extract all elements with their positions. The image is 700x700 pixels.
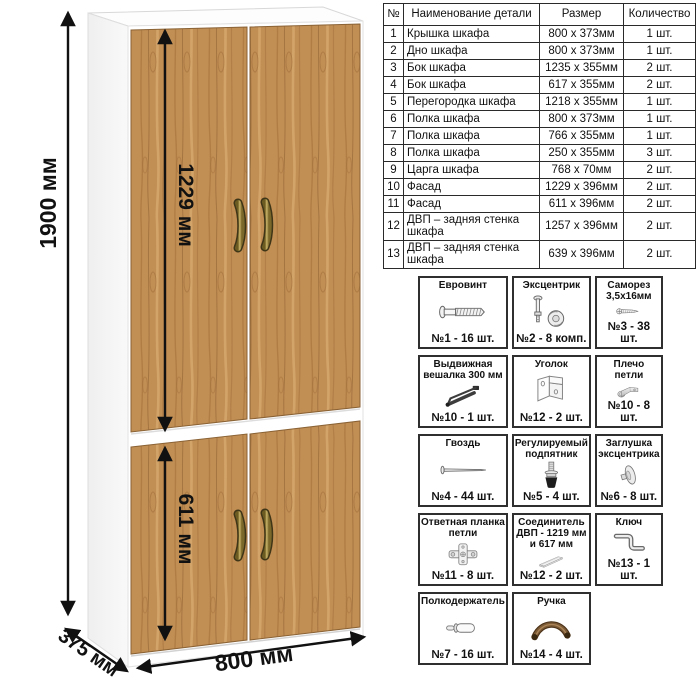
hardware-cell: Регулируемый подпятник №5 - 4 шт. bbox=[512, 434, 591, 507]
part-quantity: 2 шт. bbox=[624, 240, 696, 268]
part-number: 7 bbox=[384, 128, 404, 145]
part-number: 1 bbox=[384, 26, 404, 43]
hardware-cell: Саморез 3,5х16мм №3 - 38 шт. bbox=[595, 276, 663, 349]
parts-table-row: 10 Фасад 1229 x 396мм 2 шт. bbox=[384, 179, 696, 196]
lower-right-door-handle bbox=[265, 513, 269, 556]
nail-icon bbox=[421, 449, 505, 491]
part-size: 800 x 373мм bbox=[540, 26, 624, 43]
parts-table-row: 13 ДВП – задняя стенка шкафа 639 x 396мм… bbox=[384, 240, 696, 268]
part-name: Фасад bbox=[404, 179, 540, 196]
parts-table-row: 12 ДВП – задняя стенка шкафа 1257 x 396м… bbox=[384, 213, 696, 241]
upper-left-door-handle bbox=[238, 203, 242, 248]
handle-icon bbox=[515, 607, 588, 649]
part-number: 2 bbox=[384, 43, 404, 60]
hardware-item-count: №3 - 38 шт. bbox=[598, 321, 660, 346]
hardware-cell: Ключ №13 - 1 шт. bbox=[595, 513, 663, 586]
hex-key-icon bbox=[598, 528, 660, 558]
hardware-item-title: Саморез 3,5х16мм bbox=[598, 280, 660, 302]
part-quantity: 2 шт. bbox=[624, 77, 696, 94]
part-size: 617 x 355мм bbox=[540, 77, 624, 94]
part-name: Бок шкафа bbox=[404, 77, 540, 94]
part-number: 8 bbox=[384, 145, 404, 162]
hinge-plate-icon bbox=[421, 539, 505, 570]
hardware-item-count: №12 - 2 шт. bbox=[515, 412, 588, 425]
hardware-item-count: №13 - 1 шт. bbox=[598, 558, 660, 583]
part-size: 766 x 355мм bbox=[540, 128, 624, 145]
hardware-item-count: №7 - 16 шт. bbox=[421, 649, 505, 662]
part-quantity: 2 шт. bbox=[624, 179, 696, 196]
part-number: 4 bbox=[384, 77, 404, 94]
hardware-item-title: Уголок bbox=[515, 359, 588, 370]
part-size: 1218 x 355мм bbox=[540, 94, 624, 111]
hardware-cell: Ручка №14 - 4 шт. bbox=[512, 592, 591, 665]
screw-icon bbox=[598, 302, 660, 321]
part-quantity: 2 шт. bbox=[624, 196, 696, 213]
part-name: Фасад bbox=[404, 196, 540, 213]
hardware-item-title: Выдвижная вешалка 300 мм bbox=[421, 359, 505, 381]
part-size: 1235 x 355мм bbox=[540, 60, 624, 77]
lower-left-door-handle bbox=[238, 514, 242, 557]
part-quantity: 1 шт. bbox=[624, 43, 696, 60]
part-size: 768 x 70мм bbox=[540, 162, 624, 179]
hardware-item-count: №10 - 8 шт. bbox=[598, 400, 660, 425]
part-quantity: 2 шт. bbox=[624, 213, 696, 241]
wardrobe-side-panel bbox=[88, 13, 128, 667]
upper-right-door-handle bbox=[265, 202, 269, 247]
parts-table-header-row: №Наименование деталиРазмерКоличество bbox=[384, 4, 696, 26]
parts-table-row: 6 Полка шкафа 800 x 373мм 1 шт. bbox=[384, 111, 696, 128]
hinge-arm-icon bbox=[598, 381, 660, 400]
parts-table-header: Количество bbox=[624, 4, 696, 26]
hardware-item-count: №6 - 8 шт. bbox=[598, 491, 660, 504]
parts-table-row: 5 Перегородка шкафа 1218 x 355мм 1 шт. bbox=[384, 94, 696, 111]
hardware-item-count: №1 - 16 шт. bbox=[421, 333, 505, 346]
part-name: Дно шкафа bbox=[404, 43, 540, 60]
part-quantity: 1 шт. bbox=[624, 94, 696, 111]
wardrobe-diagram: 1900 мм 1229 мм 611 мм 800 мм 375 мм bbox=[0, 0, 395, 700]
part-number: 11 bbox=[384, 196, 404, 213]
part-name: Бок шкафа bbox=[404, 60, 540, 77]
part-number: 6 bbox=[384, 111, 404, 128]
euroscrew-icon bbox=[421, 291, 505, 333]
part-name: Царга шкафа bbox=[404, 162, 540, 179]
part-number: 5 bbox=[384, 94, 404, 111]
hardware-item-title: Эксцентрик bbox=[515, 280, 588, 291]
parts-table-row: 9 Царга шкафа 768 x 70мм 2 шт. bbox=[384, 162, 696, 179]
part-size: 800 x 373мм bbox=[540, 43, 624, 60]
hardware-cell: Евровинт №1 - 16 шт. bbox=[418, 276, 508, 349]
hardware-cell: Полкодержатель №7 - 16 шт. bbox=[418, 592, 508, 665]
part-name: Полка шкафа bbox=[404, 111, 540, 128]
hardware-cell: Плечо петли №10 - 8 шт. bbox=[595, 355, 663, 428]
parts-table-header: № bbox=[384, 4, 404, 26]
hardware-item-title: Ручка bbox=[515, 596, 588, 607]
parts-table-row: 3 Бок шкафа 1235 x 355мм 2 шт. bbox=[384, 60, 696, 77]
parts-table-header: Наименование детали bbox=[404, 4, 540, 26]
part-quantity: 1 шт. bbox=[624, 128, 696, 145]
part-size: 611 x 396мм bbox=[540, 196, 624, 213]
parts-table-row: 2 Дно шкафа 800 x 373мм 1 шт. bbox=[384, 43, 696, 60]
parts-table-row: 1 Крышка шкафа 800 x 373мм 1 шт. bbox=[384, 26, 696, 43]
part-number: 3 bbox=[384, 60, 404, 77]
hardware-item-count: №14 - 4 шт. bbox=[515, 649, 588, 662]
part-number: 9 bbox=[384, 162, 404, 179]
part-size: 1257 x 396мм bbox=[540, 213, 624, 241]
parts-table-row: 7 Полка шкафа 766 x 355мм 1 шт. bbox=[384, 128, 696, 145]
part-number: 10 bbox=[384, 179, 404, 196]
cam-icon bbox=[515, 291, 588, 333]
foot-icon bbox=[515, 460, 588, 491]
hanger-icon bbox=[421, 381, 505, 412]
part-quantity: 1 шт. bbox=[624, 111, 696, 128]
part-name: Крышка шкафа bbox=[404, 26, 540, 43]
hardware-cell: Ответная планка петли №11 - 8 шт. bbox=[418, 513, 508, 586]
part-quantity: 2 шт. bbox=[624, 162, 696, 179]
parts-table-row: 4 Бок шкафа 617 x 355мм 2 шт. bbox=[384, 77, 696, 94]
hardware-item-title: Плечо петли bbox=[598, 359, 660, 381]
hardware-cell: Выдвижная вешалка 300 мм №10 - 1 шт. bbox=[418, 355, 508, 428]
part-quantity: 1 шт. bbox=[624, 26, 696, 43]
hardware-item-title: Соединитель ДВП - 1219 мм и 617 мм bbox=[515, 517, 588, 551]
hardware-item-title: Регулируемый подпятник bbox=[515, 438, 588, 460]
parts-table-body: 1 Крышка шкафа 800 x 373мм 1 шт. 2 Дно ш… bbox=[384, 26, 696, 269]
part-name: ДВП – задняя стенка шкафа bbox=[404, 240, 540, 268]
hardware-cell: Соединитель ДВП - 1219 мм и 617 мм №12 -… bbox=[512, 513, 591, 586]
hardware-item-title: Ответная планка петли bbox=[421, 517, 505, 539]
part-name: ДВП – задняя стенка шкафа bbox=[404, 213, 540, 241]
hardware-cell: Гвоздь №4 - 44 шт. bbox=[418, 434, 508, 507]
hardware-item-count: №12 - 2 шт. bbox=[515, 570, 588, 583]
hardware-item-title: Гвоздь bbox=[421, 438, 505, 449]
shelf-pin-icon bbox=[421, 607, 505, 649]
hardware-item-count: №2 - 8 комп. bbox=[515, 333, 588, 346]
upper-door-dimension-label: 1229 мм bbox=[174, 163, 197, 247]
part-size: 800 x 373мм bbox=[540, 111, 624, 128]
hardware-item-title: Полкодержатель bbox=[421, 596, 505, 607]
part-size: 250 x 355мм bbox=[540, 145, 624, 162]
parts-table: №Наименование деталиРазмерКоличество 1 К… bbox=[383, 3, 696, 269]
height-dimension-label: 1900 мм bbox=[35, 157, 61, 249]
hardware-grid: Евровинт №1 - 16 шт. Эксцентрик №2 - 8 к… bbox=[418, 276, 655, 665]
hardware-item-count: №10 - 1 шт. bbox=[421, 412, 505, 425]
assembly-instruction-page: 1900 мм 1229 мм 611 мм 800 мм 375 мм №На… bbox=[0, 0, 700, 700]
hardware-item-title: Евровинт bbox=[421, 280, 505, 291]
hardware-item-count: №5 - 4 шт. bbox=[515, 491, 588, 504]
hardware-cell: Эксцентрик №2 - 8 комп. bbox=[512, 276, 591, 349]
part-quantity: 3 шт. bbox=[624, 145, 696, 162]
part-name: Полка шкафа bbox=[404, 145, 540, 162]
hardware-item-count: №11 - 8 шт. bbox=[421, 570, 505, 583]
height-dimension: 1900 мм bbox=[35, 13, 68, 614]
hardware-cell: Уголок №12 - 2 шт. bbox=[512, 355, 591, 428]
hardware-item-count: №4 - 44 шт. bbox=[421, 491, 505, 504]
hardware-item-title: Ключ bbox=[598, 517, 660, 528]
part-name: Перегородка шкафа bbox=[404, 94, 540, 111]
parts-table-row: 8 Полка шкафа 250 x 355мм 3 шт. bbox=[384, 145, 696, 162]
cam-cap-icon bbox=[598, 460, 660, 491]
part-name: Полка шкафа bbox=[404, 128, 540, 145]
lower-door-dimension-label: 611 мм bbox=[174, 494, 197, 565]
part-quantity: 2 шт. bbox=[624, 60, 696, 77]
part-size: 1229 x 396мм bbox=[540, 179, 624, 196]
hdf-connector-icon bbox=[515, 551, 588, 570]
parts-table-header: Размер bbox=[540, 4, 624, 26]
part-size: 639 x 396мм bbox=[540, 240, 624, 268]
hardware-cell: Заглушка эксцентрика №6 - 8 шт. bbox=[595, 434, 663, 507]
hardware-item-title: Заглушка эксцентрика bbox=[598, 438, 660, 460]
part-number: 13 bbox=[384, 240, 404, 268]
parts-table-row: 11 Фасад 611 x 396мм 2 шт. bbox=[384, 196, 696, 213]
part-number: 12 bbox=[384, 213, 404, 241]
bracket-icon bbox=[515, 370, 588, 412]
